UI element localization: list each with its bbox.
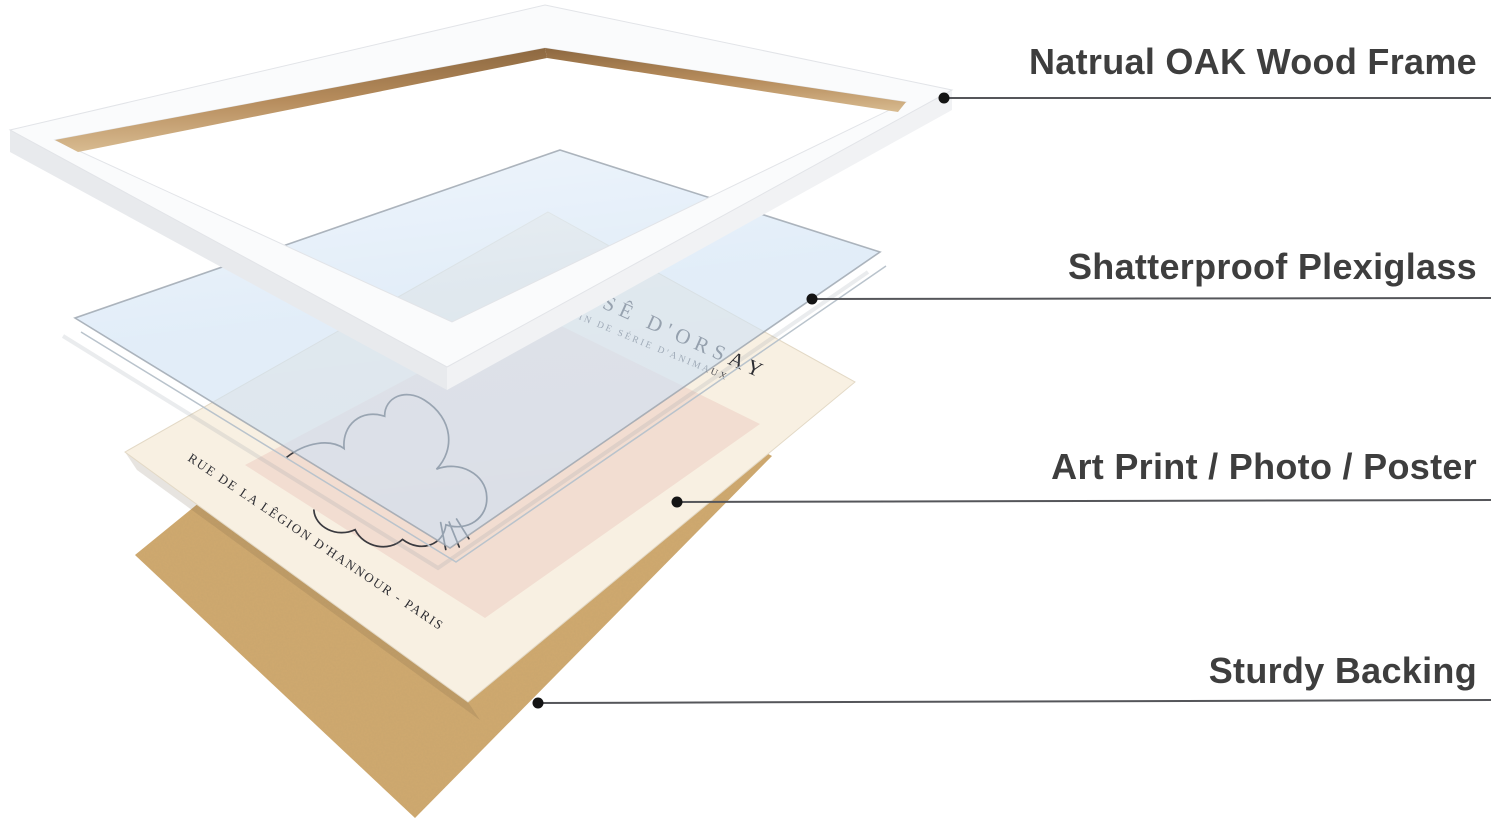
product-diagram-stage: USÊ D'ORSAY SSIN DE SÉRIE D'ANIMAUX RUE … bbox=[0, 0, 1500, 832]
callout-dot-print bbox=[672, 497, 683, 508]
callout-dot-plexiglass bbox=[807, 294, 818, 305]
callout-line-backing bbox=[538, 700, 1491, 703]
callout-label-backing: Sturdy Backing bbox=[1209, 649, 1477, 693]
callout-dot-backing bbox=[533, 698, 544, 709]
callout-label-print: Art Print / Photo / Poster bbox=[1051, 445, 1477, 489]
callout-dot-frame bbox=[939, 93, 950, 104]
callout-line-plexiglass bbox=[812, 298, 1491, 299]
exploded-frame-diagram: USÊ D'ORSAY SSIN DE SÉRIE D'ANIMAUX RUE … bbox=[0, 0, 1500, 832]
callout-label-frame: Natrual OAK Wood Frame bbox=[1029, 40, 1477, 84]
callout-line-print bbox=[677, 500, 1491, 502]
callout-label-plexiglass: Shatterproof Plexiglass bbox=[1068, 245, 1477, 289]
